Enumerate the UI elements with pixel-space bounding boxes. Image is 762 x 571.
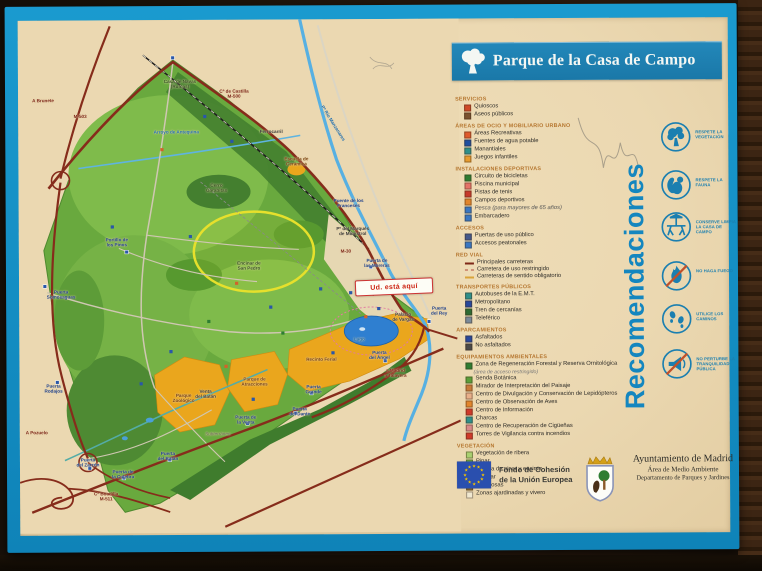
eu-funding: ★★★★★★★★★★★★ Fondo de Cohesión de la Uni… (457, 461, 573, 489)
legend-item-label: Mirador de Interpretación del Paisaje (476, 383, 571, 390)
legend-swatch (464, 147, 471, 154)
eu-star: ★ (463, 473, 467, 477)
legend-swatch (465, 206, 472, 213)
eu-star: ★ (472, 464, 476, 468)
legend-swatch (466, 384, 473, 391)
legend-swatch (466, 451, 473, 458)
legend-item-label: Metropolitano (475, 299, 510, 306)
legend-item-label: Senda Botánica (476, 375, 517, 382)
legend-section: INSTALACIONES DEPORTIVASCircuito de bici… (455, 166, 643, 222)
legend-item: Teleférico (456, 315, 644, 324)
madrid-line3: Departamento de Parques y Jardines (622, 474, 744, 483)
legend-section: RED VIALPrincipales carreterasCarretera … (456, 252, 644, 281)
legend-item-label: Manantiales (474, 146, 505, 153)
sign-panel: A BruneteM-503Cª de Castilla M-500Casa d… (18, 17, 731, 536)
legend-swatch (465, 198, 472, 205)
legend-swatch (465, 182, 472, 189)
recommendations-heading: Recomendaciones (616, 136, 654, 436)
legend-swatch (465, 214, 472, 221)
legend-item-label: Asfaltados (475, 334, 502, 341)
you-are-here-label: Ud. está aquí (370, 282, 418, 291)
eu-text-line2: de la Unión Europea (499, 474, 572, 484)
legend-item-label: Charcas (476, 415, 498, 422)
legend-swatch (465, 300, 472, 307)
legend-item-label: Centro de Observación de Aves (476, 399, 558, 406)
legend-item-label: Torres de Vigilancia contra incendios (476, 431, 570, 438)
legend-swatch (466, 408, 473, 415)
legend-swatch (464, 155, 471, 162)
eu-star: ★ (472, 482, 476, 486)
legend-swatch (465, 308, 472, 315)
legend-item-label: Quioscos (474, 103, 498, 110)
legend-item: Carreteras de sentido obligatorio (456, 273, 644, 281)
legend-swatch (466, 400, 473, 407)
legend-item-label: Centro de Divulgación y Conservación de … (476, 391, 618, 399)
eu-star: ★ (464, 477, 468, 481)
legend-swatch (466, 432, 473, 439)
wood-frame-bottom (0, 555, 762, 571)
legend-item-label: Puertas de uso público (475, 232, 534, 239)
legend-item-label: Fuentes de agua potable (474, 138, 538, 145)
eu-flag-icon: ★★★★★★★★★★★★ (457, 461, 491, 488)
legend-swatch (465, 343, 472, 350)
legend-swatch (466, 392, 473, 399)
legend-item: No asfaltados (456, 342, 644, 351)
madrid-line1: Ayuntamiento de Madrid (622, 453, 744, 466)
legend-swatch (466, 416, 473, 423)
sign-title: Parque de la Casa de Campo (493, 51, 696, 70)
legend-item: Embarcadero (456, 213, 644, 222)
legend-item-label: Carreteras de sentido obligatorio (477, 273, 561, 280)
legend-item: Accesos peatonales (456, 240, 644, 249)
you-are-here-badge: Ud. está aquí (355, 277, 434, 296)
legend-swatch (465, 241, 472, 248)
legend-swatch (465, 269, 474, 270)
legend-swatch (465, 335, 472, 342)
legend-swatch (466, 376, 473, 383)
madrid-attribution: Ayuntamiento de Madrid Área de Medio Amb… (584, 453, 744, 504)
legend-item-label: Teleférico (475, 315, 500, 322)
legend-item-label: Pesca (para mayores de 65 años) (475, 205, 562, 212)
legend-item-label: Piscina municipal (474, 181, 519, 188)
legend-item-label: Zonas ajardinadas y vivero (476, 490, 545, 497)
legend-swatch (464, 104, 471, 111)
legend-swatch (464, 139, 471, 146)
casa-de-campo-sign-photo: A BruneteM-503Cª de Castilla M-500Casa d… (0, 0, 762, 571)
legend-item-label: No asfaltados (475, 342, 510, 349)
legend-swatch (465, 292, 472, 299)
eu-text-line1: Fondo de Cohesión (499, 465, 572, 475)
legend-section: APARCAMIENTOSAsfaltadosNo asfaltados (456, 327, 644, 351)
legend-swatch (466, 424, 473, 431)
legend-swatch (464, 174, 471, 181)
legend-item-label: Vegetación de ribera (476, 450, 529, 457)
legend-item-label: Pistas de tenis (475, 189, 513, 196)
legend-item: Aseos públicos (455, 111, 643, 120)
legend-swatch (465, 190, 472, 197)
legend-section: ÁREAS DE OCIO Y MOBILIARIO URBANOÁreas R… (455, 123, 643, 163)
legend-item-label: Campos deportivos (475, 197, 525, 204)
legend-item: Torres de Vigilancia contra incendios (457, 431, 645, 440)
legend-item-label: Embarcadero (475, 213, 510, 220)
legend-swatch (465, 276, 474, 278)
tree-logo-icon (458, 46, 488, 76)
madrid-crest-icon (584, 454, 616, 504)
eu-star: ★ (467, 465, 471, 469)
legend-item-label: Tren de cercanías (475, 307, 522, 314)
legend-item-label: Zona de Regeneración Forestal y Reserva … (475, 361, 617, 369)
legend-item-label: Centro de Recuperación de Cigüeñas (476, 423, 573, 431)
legend-item: Juegos infantiles (455, 154, 643, 163)
eu-star: ★ (477, 481, 481, 485)
legend-swatch (465, 362, 472, 369)
legend-item-label: Áreas Recreativas (474, 130, 521, 137)
title-banner: Parque de la Casa de Campo (452, 41, 722, 80)
sign-blue-frame: A BruneteM-503Cª de Castilla M-500Casa d… (5, 3, 740, 553)
legend-swatch (465, 233, 472, 240)
legend-item-label: Aseos públicos (474, 111, 513, 118)
legend-swatch (466, 491, 473, 498)
legend-item-label: Juegos infantiles (474, 154, 517, 161)
legend-section: ACCESOSPuertas de uso públicoAccesos pea… (456, 225, 644, 249)
legend-swatch (465, 262, 474, 264)
legend-section: SERVICIOSQuioscosAseos públicos (455, 96, 643, 120)
legend-swatch (465, 316, 472, 323)
legend-item-label: Circuito de bicicletas (474, 173, 527, 180)
legend-section: TRANSPORTES PÚBLICOSAutobuses de la E.M.… (456, 284, 644, 324)
recommendations-heading-text: Recomendaciones (619, 162, 651, 408)
legend-item-label: Centro de Información (476, 407, 533, 414)
legend-item-label: Autobuses de la E.M.T. (475, 291, 535, 298)
legend-item-label: Accesos peatonales (475, 240, 527, 247)
legend-swatch (464, 131, 471, 138)
legend-swatch (464, 112, 471, 119)
